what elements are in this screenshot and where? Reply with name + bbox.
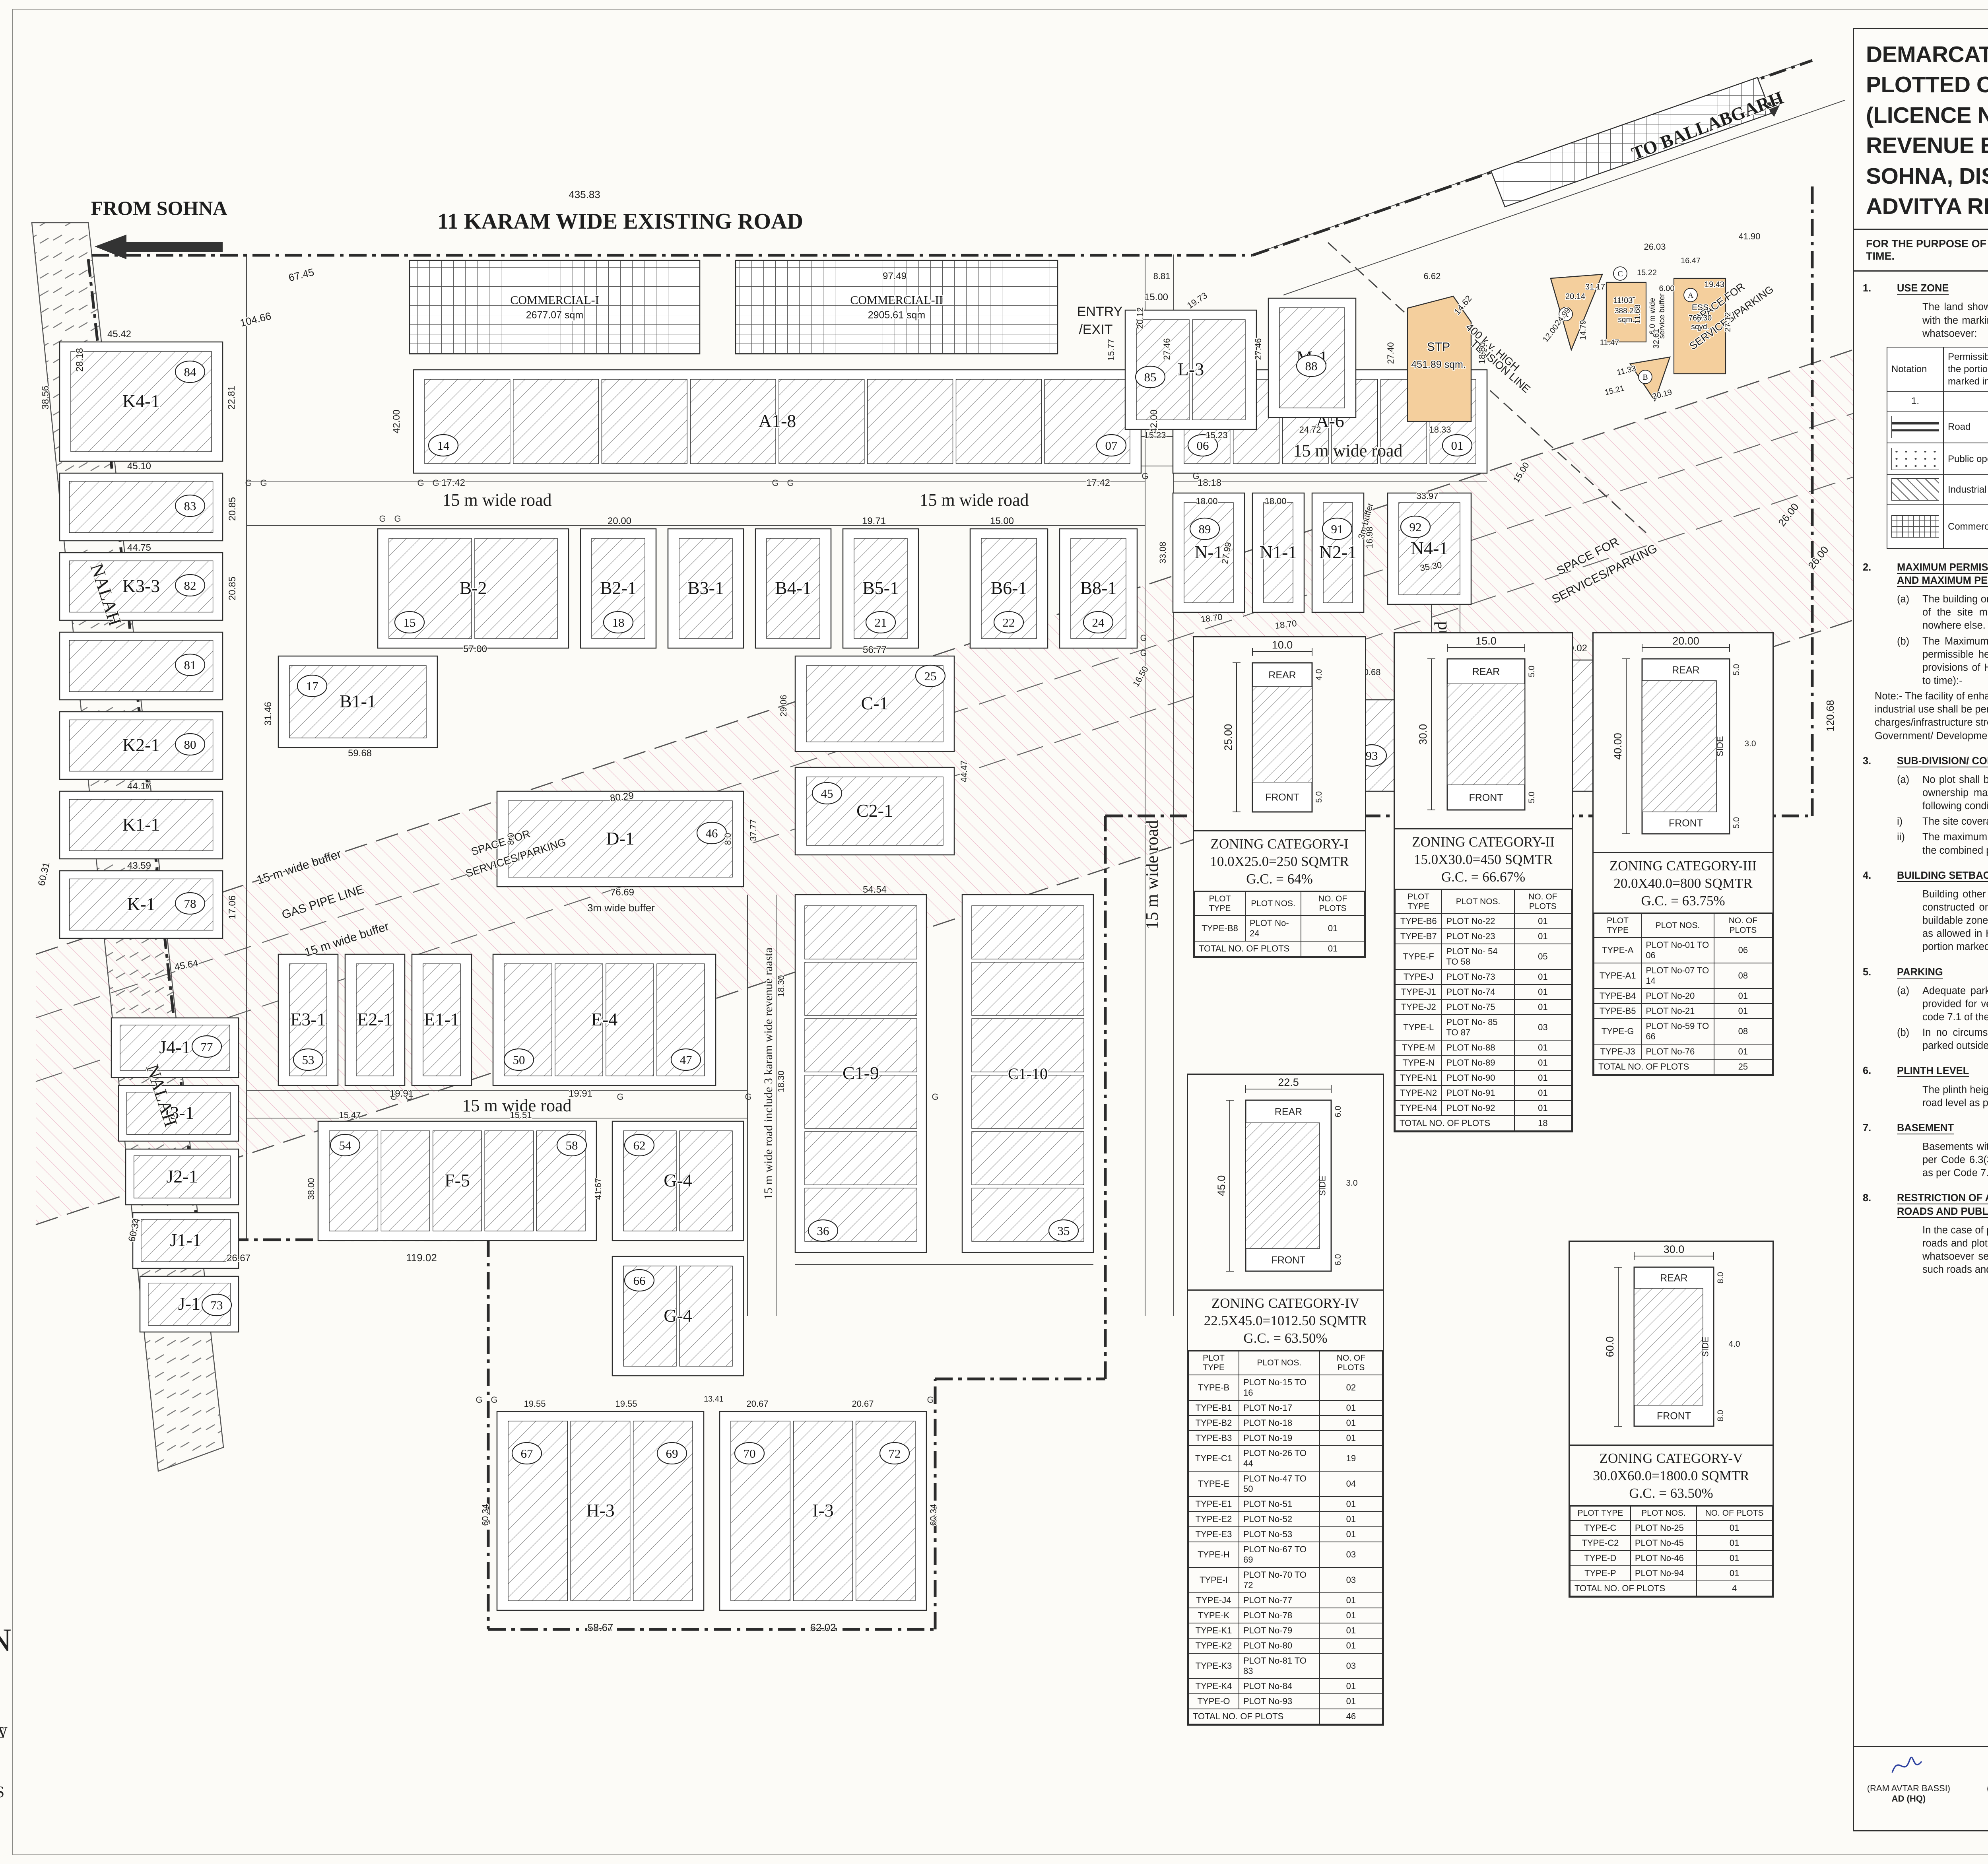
plot-row: TYPE-J4PLOT No-7701 <box>1188 1593 1382 1608</box>
plot-row: TYPE-FPLOT No- 54 TO 5805 <box>1395 944 1571 969</box>
plot-number-25: 25 <box>916 665 945 687</box>
buildable-cell <box>805 962 917 1015</box>
plot-type: TYPE-C2 <box>1570 1536 1631 1551</box>
plot-count: 01 <box>1514 914 1571 929</box>
plot-row: TYPE-K3PLOT No-81 TO 8303 <box>1188 1653 1382 1679</box>
plan-text: 8.81 <box>1153 271 1171 281</box>
plan-text: 8.0 <box>506 833 516 845</box>
svg-text:REAR: REAR <box>1660 1273 1687 1284</box>
plot-number-text: 17 <box>306 679 318 693</box>
plot-number-70: 70 <box>735 1443 764 1464</box>
plan-text: 20.85 <box>227 497 238 521</box>
plot-type: TYPE-N2 <box>1395 1085 1442 1101</box>
plot-count: 01 <box>1514 984 1571 1000</box>
signatory-role: ATP(HQ) <box>1963 1794 1988 1804</box>
block-label: I-3 <box>812 1500 834 1520</box>
signature-squiggle <box>1887 1749 1930 1781</box>
plot-row: TYPE-E2PLOT No-5201 <box>1188 1512 1382 1527</box>
plot-number-47: 47 <box>671 1049 701 1070</box>
plot-block-I-3: I-3 <box>720 1412 926 1610</box>
plot-nos: PLOT No-80 <box>1239 1638 1320 1653</box>
zoning-diagram: REARFRONT10.025.004.05.0 <box>1216 637 1343 830</box>
plot-count: 01 <box>1714 1044 1772 1059</box>
use-zone-row: RoadRoad furniture at approved places. <box>1887 411 1988 443</box>
col-plot-nos: PLOT NOS. <box>1641 914 1714 938</box>
zoning-diagram: REARFRONT20.0040.005.05.0SIDE3.0 <box>1606 633 1761 852</box>
plot-count: 01 <box>1320 1593 1382 1608</box>
plot-block-N1-1: N1-1 <box>1252 493 1304 612</box>
plan-text: STP <box>1427 340 1450 353</box>
plot-row: TYPE-KPLOT No-7801 <box>1188 1608 1382 1623</box>
plot-nos: PLOT No-46 <box>1631 1551 1697 1566</box>
plot-number-text: 66 <box>633 1274 646 1287</box>
total-count: 46 <box>1320 1709 1382 1724</box>
plot-number-text: 36 <box>817 1224 829 1238</box>
zoning-diagram: REARFRONT22.545.06.06.0SIDE3.0 <box>1209 1075 1362 1289</box>
plot-nos: PLOT No-74 <box>1442 984 1514 1000</box>
gate-mark: G <box>476 1395 482 1405</box>
plot-number-53: 53 <box>293 1049 323 1070</box>
plot-nos: PLOT No-47 TO 50 <box>1239 1471 1320 1497</box>
plot-type: TYPE-K4 <box>1188 1679 1239 1694</box>
plot-nos: PLOT No-25 <box>1631 1520 1697 1536</box>
plan-text: 56.77 <box>863 645 887 655</box>
plot-number-text: 58 <box>566 1138 578 1152</box>
block-label: F-5 <box>445 1170 470 1190</box>
note-section-title: MAXIMUM PERMISSIBLE GROUND COVERAGE BASE… <box>1897 561 1988 587</box>
plot-row: TYPE-J3PLOT No-7601 <box>1594 1044 1772 1059</box>
plot-number-text: 53 <box>302 1053 315 1067</box>
gate-mark: G <box>927 1395 934 1405</box>
total-count: 01 <box>1301 941 1365 956</box>
hatch-symbol <box>1891 478 1939 501</box>
plot-count: 01 <box>1697 1536 1772 1551</box>
plot-nos: PLOT No-53 <box>1239 1527 1320 1542</box>
plan-text: 15.47 <box>339 1110 361 1120</box>
zoning-diagram-box: REARFRONT15.030.05.05.0 <box>1395 633 1572 829</box>
svg-text:3.0: 3.0 <box>1346 1179 1357 1188</box>
col-no-of-plots: NO. OF PLOTS <box>1514 890 1571 914</box>
plan-text: 45.42 <box>107 329 131 340</box>
note-section: 3.SUB-DIVISION/ COMBINATION OF PLOTS.(a)… <box>1863 755 1988 857</box>
plan-text: 18.00 <box>1264 496 1286 506</box>
zoning-category-gc: G.C. = 63.50% <box>1189 1330 1382 1347</box>
plan-text: 11.03 <box>1613 296 1633 305</box>
plot-count: 01 <box>1714 988 1772 1004</box>
plot-block-C1-9: C1-9 <box>795 895 926 1252</box>
svg-text:22.5: 22.5 <box>1278 1076 1299 1088</box>
use-zone-row: CommercialAs per supplementary zoning pl… <box>1887 504 1988 549</box>
gate-mark: G <box>260 478 267 488</box>
block-label: C1-9 <box>843 1063 879 1083</box>
plan-text: 26.67 <box>227 1253 250 1264</box>
plot-type: TYPE-B2 <box>1188 1415 1239 1431</box>
plan-text: 11 KARAM WIDE EXISTING ROAD <box>437 209 803 234</box>
plan-text: 60.34 <box>480 1504 490 1526</box>
use-zone-use-cell: Industrial <box>1943 475 1988 504</box>
plan-text: 41.67 <box>593 1178 603 1200</box>
plot-block-E2-1: E2-1 <box>345 954 405 1085</box>
zoning-diagram-box: REARFRONT30.060.08.08.0SIDE4.0 <box>1570 1242 1773 1446</box>
zoning-category-table: PLOT TYPEPLOT NOS.NO. OF PLOTSTYPE-BPLOT… <box>1188 1351 1383 1724</box>
plot-count: 01 <box>1514 1101 1571 1116</box>
plot-type: TYPE-K <box>1188 1608 1239 1623</box>
plot-number-17: 17 <box>297 675 327 697</box>
plot-type: TYPE-B4 <box>1594 988 1641 1004</box>
plan-text: 19.55 <box>524 1399 546 1409</box>
use-zone-colnum-cell: 1. <box>1887 391 1943 411</box>
note-paragraph-text: Building other than boundary wall, Guard… <box>1922 888 1988 954</box>
note-paragraph: (b)In no circumstance, the vehicle(s) be… <box>1897 1026 1988 1052</box>
note-paragraph: (a)No plot shall be sub-divided. However… <box>1897 773 1988 813</box>
plan-text: 104.66 <box>239 310 272 329</box>
plan-text: 11.68 <box>1633 305 1642 324</box>
plot-nos: PLOT No-07 TO 14 <box>1641 963 1714 988</box>
plot-count: 02 <box>1320 1375 1382 1400</box>
plan-text: 97.49 <box>883 271 907 282</box>
plan-text: 766.30 <box>1689 314 1712 322</box>
plot-type: TYPE-O <box>1188 1694 1239 1709</box>
plot-number-66: 66 <box>625 1270 654 1291</box>
plan-text: 45.10 <box>127 461 151 472</box>
plot-number-81: 81 <box>175 654 205 676</box>
plot-count: 19 <box>1320 1446 1382 1471</box>
note-section-heading: 3.SUB-DIVISION/ COMBINATION OF PLOTS. <box>1863 755 1988 768</box>
block-label: J4-1 <box>159 1037 190 1057</box>
buildable-cell <box>805 1075 917 1128</box>
plan-text: 20.00 <box>608 516 631 526</box>
plot-row: TYPE-B6PLOT No-2201 <box>1395 914 1571 929</box>
plot-count: 01 <box>1514 929 1571 944</box>
col-plot-type: PLOT TYPE <box>1188 1351 1239 1375</box>
plot-block-J1-1: J1-1 <box>133 1213 239 1268</box>
plan-text: 38.00 <box>306 1178 316 1200</box>
note-paragraph-label: (b) <box>1897 1026 1922 1052</box>
plot-type: TYPE-B <box>1188 1375 1239 1400</box>
use-zone-table: NotationPermissible use of land on the p… <box>1887 347 1988 549</box>
plot-number-text: 72 <box>889 1447 901 1460</box>
plot-number-14: 14 <box>429 435 458 456</box>
total-label: TOTAL NO. OF PLOTS <box>1188 1709 1320 1724</box>
plot-row: TYPE-E1PLOT No-5101 <box>1188 1497 1382 1512</box>
svg-text:30.0: 30.0 <box>1417 724 1429 745</box>
plan-text: 119.02 <box>406 1252 437 1264</box>
signatory-name: (VIKAS YADAV) <box>1963 1783 1988 1794</box>
total-row: TOTAL NO. OF PLOTS01 <box>1194 941 1365 956</box>
plot-nos: PLOT No-93 <box>1239 1694 1320 1709</box>
plot-number-text: 77 <box>201 1040 213 1054</box>
plan-text: 18.33 <box>1429 425 1451 435</box>
plot-type: TYPE-G <box>1594 1019 1641 1044</box>
buildable-cell <box>805 1132 917 1185</box>
plan-text: 37.77 <box>748 819 758 841</box>
plot-row: TYPE-B5PLOT No-2101 <box>1594 1004 1772 1019</box>
plot-block-B4-1: B4-1 <box>755 529 831 648</box>
plot-number-text: 07 <box>1105 439 1118 452</box>
plot-type: TYPE-J3 <box>1594 1044 1641 1059</box>
plot-count: 01 <box>1320 1638 1382 1653</box>
use-zone-row: Public open spaceTo be used only for lan… <box>1887 443 1988 475</box>
plot-number-91: 91 <box>1322 518 1352 540</box>
signature-row: (RAM AVTAR BASSI)AD (HQ)(VIKAS YADAV)ATP… <box>1854 1746 1988 1829</box>
buildable-cell <box>475 538 557 639</box>
svg-text:45.0: 45.0 <box>1215 1175 1227 1196</box>
note-paragraph-label <box>1897 888 1922 954</box>
plan-text: 15.00 <box>1144 292 1168 303</box>
plot-nos: PLOT No-89 <box>1442 1055 1514 1070</box>
plot-block-E1-1: E1-1 <box>412 954 472 1085</box>
zoning-category-name: ZONING CATEGORY-III <box>1594 857 1772 875</box>
note-paragraph-label: i) <box>1897 815 1922 828</box>
plan-text: 19.55 <box>615 1399 637 1409</box>
plot-row: TYPE-A1PLOT No-07 TO 1408 <box>1594 963 1772 988</box>
zoning-category-size: 10.0X25.0=250 SQMTR <box>1195 853 1364 870</box>
plot-nos: PLOT No-21 <box>1641 1004 1714 1019</box>
plot-row: TYPE-HPLOT No-67 TO 6903 <box>1188 1542 1382 1567</box>
plot-number-80: 80 <box>175 734 205 755</box>
plot-number-text: 62 <box>633 1138 646 1152</box>
signature-cell: (RAM AVTAR BASSI)AD (HQ) <box>1854 1747 1963 1829</box>
col-no-of-plots: NO. OF PLOTS <box>1697 1506 1772 1520</box>
note-paragraph: In the case of plots which abut on the 4… <box>1897 1224 1988 1277</box>
plot-count: 01 <box>1320 1400 1382 1415</box>
notes-column-1: 1.USE ZONEThe land shown in this zoning … <box>1863 282 1988 1288</box>
plan-text: 42.00 <box>391 410 402 433</box>
zoning-category-table: PLOT TYPEPLOT NOS.NO. OF PLOTSTYPE-CPLOT… <box>1570 1506 1773 1596</box>
total-row: TOTAL NO. OF PLOTS46 <box>1188 1709 1382 1724</box>
facility-marker-B: B <box>1639 370 1652 384</box>
dots-symbol <box>1891 448 1939 470</box>
plan-text: /EXIT <box>1079 322 1112 337</box>
buildable-cell <box>602 379 687 464</box>
plot-type: TYPE-K1 <box>1188 1623 1239 1638</box>
block-label: G-4 <box>664 1170 692 1190</box>
plan-text: 20.67 <box>852 1399 874 1409</box>
zoning-category-title: ZONING CATEGORY-I10.0X25.0=250 SQMTRG.C.… <box>1194 831 1365 891</box>
gate-mark: G <box>745 1092 751 1102</box>
plot-number-82: 82 <box>175 575 205 596</box>
note-paragraph-text: The plinth height of building shall not … <box>1922 1083 1988 1110</box>
note-section: 6.PLINTH LEVELThe plinth height of build… <box>1863 1064 1988 1109</box>
note-section-heading: 8.RESTRICTION OF ACCESS FROM 45 MTS. WID… <box>1863 1192 1988 1218</box>
plan-text: 24.72 <box>1299 425 1321 435</box>
plot-type: TYPE-P <box>1570 1566 1631 1581</box>
plot-count: 01 <box>1320 1431 1382 1446</box>
facility-marker-text: B <box>1642 373 1648 382</box>
block-label: D-1 <box>606 828 635 849</box>
plot-type: TYPE-B7 <box>1395 929 1442 944</box>
svg-text:8.0: 8.0 <box>1716 1410 1725 1421</box>
plan-text: 67.45 <box>287 266 315 284</box>
use-zone-symbol-cell <box>1887 504 1943 549</box>
plot-number-67: 67 <box>512 1443 542 1464</box>
compass-rose: NWES <box>0 1622 12 1801</box>
block-label: B4-1 <box>775 578 812 598</box>
block-label: J-1 <box>178 1293 200 1314</box>
zoning-category-gc: G.C. = 63.75% <box>1594 892 1772 910</box>
plot-count: 01 <box>1714 1004 1772 1019</box>
plan-text: 15.23 <box>1144 430 1166 440</box>
plot-number-text: 92 <box>1409 520 1422 534</box>
compass-north-label: N <box>0 1622 12 1658</box>
plan-text: 19.71 <box>862 516 886 526</box>
plan-text: 20.14 <box>1565 292 1585 301</box>
plan-text: 44.75 <box>127 542 151 553</box>
plot-type: TYPE-N4 <box>1395 1101 1442 1116</box>
plot-count: 04 <box>1320 1471 1382 1497</box>
note-paragraph-text: The building or buildings shall be const… <box>1922 593 1988 632</box>
plan-text: 62.02 <box>810 1621 836 1633</box>
note-section-title: USE ZONE <box>1897 282 1949 295</box>
col-no-of-plots: NO. OF PLOTS <box>1320 1351 1382 1375</box>
plan-text: 20.85 <box>227 577 238 600</box>
plot-number-46: 46 <box>697 822 726 844</box>
plot-number-50: 50 <box>504 1049 534 1070</box>
plan-text: 41.90 <box>1738 231 1760 241</box>
plan-text: ENTRY <box>1077 304 1123 319</box>
plot-count: 01 <box>1320 1679 1382 1694</box>
zoning-category-name: ZONING CATEGORY-I <box>1195 835 1364 853</box>
compass-south-label: S <box>0 1783 4 1801</box>
plan-text: 17.06 <box>227 895 238 919</box>
block-area-label: 2677.07 sqm <box>526 310 584 321</box>
plot-number-36: 36 <box>808 1220 838 1241</box>
use-zone-use-cell: Road <box>1943 411 1988 443</box>
plan-text: 60.34 <box>928 1504 938 1526</box>
buildable-cell <box>972 962 1084 1015</box>
plan-text: 15 m wide road <box>920 490 1029 510</box>
note-paragraph-label: (a) <box>1897 984 1922 1024</box>
plot-nos: PLOT No-79 <box>1239 1623 1320 1638</box>
plot-nos: PLOT No-26 TO 44 <box>1239 1446 1320 1471</box>
plot-count: 01 <box>1514 1055 1571 1070</box>
note-section: 4.BUILDING SETBACKBuilding other than bo… <box>1863 869 1988 954</box>
plot-row: TYPE-N1PLOT No-9001 <box>1395 1070 1571 1085</box>
svg-text:5.0: 5.0 <box>1732 817 1741 829</box>
plot-nos: PLOT No-84 <box>1239 1679 1320 1694</box>
note-section: 8.RESTRICTION OF ACCESS FROM 45 MTS. WID… <box>1863 1192 1988 1276</box>
block-label: A1-8 <box>759 411 796 431</box>
plot-count: 08 <box>1714 963 1772 988</box>
plot-number-text: 22 <box>1003 616 1015 629</box>
notes-panel: DEMARCATION CUM ZONING PLAN OF INDUSTRIA… <box>1853 28 1988 1831</box>
zoning-category-name: ZONING CATEGORY-IV <box>1189 1295 1382 1312</box>
zoning-category-title: ZONING CATEGORY-V30.0X60.0=1800.0 SQMTRG… <box>1570 1446 1773 1506</box>
plot-number-text: 45 <box>821 786 833 800</box>
plot-row: TYPE-GPLOT No-59 TO 6608 <box>1594 1019 1772 1044</box>
block-label: B6-1 <box>991 578 1027 598</box>
plot-number-text: 25 <box>924 669 937 683</box>
plot-type: TYPE-I <box>1188 1567 1239 1593</box>
note-section: 7.BASEMENTBasements within the building … <box>1863 1122 1988 1180</box>
plot-block-F-5: F-5 <box>318 1121 596 1241</box>
block-label: E3-1 <box>290 1009 326 1029</box>
zoning-category-gc: G.C. = 63.50% <box>1571 1485 1772 1502</box>
block-label: K3-3 <box>122 576 160 596</box>
plot-type: TYPE-J <box>1395 969 1442 984</box>
plot-count: 01 <box>1320 1512 1382 1527</box>
note-paragraph: The plinth height of building shall not … <box>1897 1083 1988 1110</box>
block-label: C-1 <box>861 693 889 713</box>
note-section: 5.PARKING(a)Adequate parking spaces, cov… <box>1863 966 1988 1053</box>
plot-type: TYPE-B1 <box>1188 1400 1239 1415</box>
zoning-category-gc: G.C. = 64% <box>1195 870 1364 888</box>
plot-number-01: 01 <box>1442 435 1472 456</box>
plot-block-B3-1: B3-1 <box>668 529 744 648</box>
zoning-diagram-box: REARFRONT10.025.004.05.0 <box>1194 637 1365 831</box>
plot-type: TYPE-C <box>1570 1520 1631 1536</box>
buildable-cell <box>513 379 599 464</box>
svg-text:FRONT: FRONT <box>1265 792 1299 803</box>
block-area-label: 2905.61 sqm <box>868 310 926 321</box>
plot-count: 06 <box>1714 938 1772 963</box>
use-zone-symbol-cell <box>1887 411 1943 443</box>
plot-number-18: 18 <box>604 612 633 633</box>
svg-text:FRONT: FRONT <box>1271 1255 1305 1266</box>
plan-text: 8.0 <box>723 833 733 845</box>
use-zone-use-cell: Commercial <box>1943 504 1988 549</box>
plan-text: 27.40 <box>1386 342 1396 364</box>
note-section-title: RESTRICTION OF ACCESS FROM 45 MTS. WIDE … <box>1897 1192 1988 1218</box>
plot-number-text: 93 <box>1366 749 1378 763</box>
plot-row: TYPE-CPLOT No-2501 <box>1570 1520 1772 1536</box>
plan-text: 31.17 <box>1585 283 1605 291</box>
svg-text:10.0: 10.0 <box>1272 639 1293 651</box>
svg-text:5.0: 5.0 <box>1732 664 1741 676</box>
plot-type: TYPE-C1 <box>1188 1446 1239 1471</box>
plan-text: 15.51 <box>510 1110 532 1120</box>
plot-block-N-1: N-1 <box>1173 493 1244 612</box>
zoning-category-gc: G.C. = 66.67% <box>1396 868 1571 886</box>
use-zone-symbol-cell <box>1887 443 1943 475</box>
plot-nos: PLOT No-51 <box>1239 1497 1320 1512</box>
gate-mark: G <box>1140 633 1147 643</box>
plot-number-text: 67 <box>521 1447 533 1460</box>
plot-row: TYPE-IPLOT No-70 TO 7203 <box>1188 1567 1382 1593</box>
svg-text:5.0: 5.0 <box>1314 791 1324 803</box>
plan-text: 435.83 <box>569 188 600 200</box>
plot-number-text: 01 <box>1451 439 1464 452</box>
plot-nos: PLOT No-78 <box>1239 1608 1320 1623</box>
plot-block-N4-1: N4-1 <box>1388 493 1471 604</box>
plot-row: TYPE-LPLOT No- 85 TO 8703 <box>1395 1015 1571 1040</box>
plan-text: 44.17 <box>127 781 151 792</box>
plot-number-text: 80 <box>184 738 196 751</box>
plot-number-text: 15 <box>404 616 416 629</box>
svg-text:SIDE: SIDE <box>1317 1175 1327 1196</box>
plot-count: 01 <box>1514 969 1571 984</box>
plot-row: TYPE-N2PLOT No-9101 <box>1395 1085 1571 1101</box>
plot-type: TYPE-A <box>1594 938 1641 963</box>
note-paragraph-text: Adequate parking spaces, covered, open o… <box>1922 984 1988 1024</box>
notes-body: 1.USE ZONEThe land shown in this zoning … <box>1854 272 1988 1631</box>
plan-text: 11.33 <box>1616 364 1637 377</box>
plot-row: TYPE-PPLOT No-9401 <box>1570 1566 1772 1581</box>
block-label: COMMERCIAL-II <box>850 294 943 307</box>
plot-number-text: 18 <box>612 616 625 629</box>
plot-block-A1-8: A1-8 <box>414 370 1141 473</box>
plot-type: TYPE-E3 <box>1188 1527 1239 1542</box>
plan-text: 27.46 <box>1253 338 1263 360</box>
plot-row: TYPE-K2PLOT No-8001 <box>1188 1638 1382 1653</box>
buildable-cell <box>805 906 917 959</box>
note-section-title: BASEMENT <box>1897 1122 1954 1135</box>
zoning-diagram: REARFRONT30.060.08.08.0SIDE4.0 <box>1598 1242 1745 1445</box>
svg-text:SIDE: SIDE <box>1715 736 1725 756</box>
col-plot-type: PLOT TYPE <box>1194 892 1245 916</box>
plot-row: TYPE-DPLOT No-4601 <box>1570 1551 1772 1566</box>
buildable-cell <box>381 1131 429 1231</box>
